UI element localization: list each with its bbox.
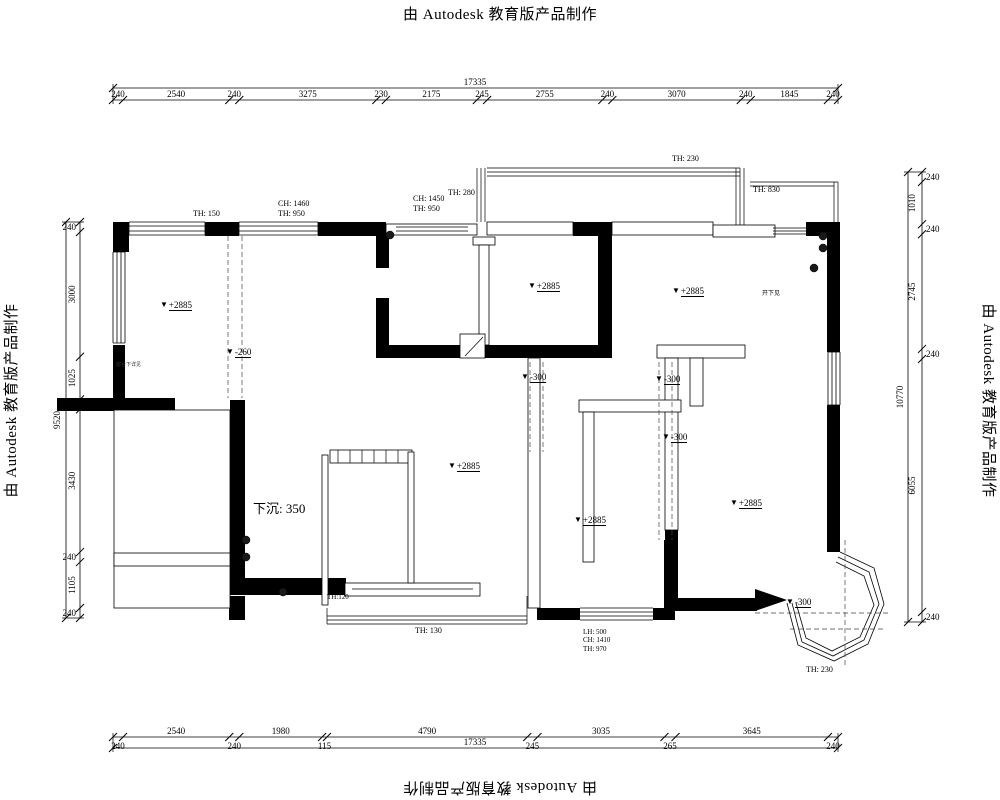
svg-text:2540: 2540 xyxy=(167,726,186,736)
svg-text:10770: 10770 xyxy=(895,385,905,408)
svg-text:240: 240 xyxy=(63,608,77,618)
svg-text:240: 240 xyxy=(111,89,125,99)
svg-text:245: 245 xyxy=(475,89,489,99)
svg-text:2540: 2540 xyxy=(167,89,186,99)
svg-text:17335: 17335 xyxy=(464,737,487,747)
svg-text:3430: 3430 xyxy=(67,471,77,490)
svg-text:17335: 17335 xyxy=(464,77,487,87)
dim-chain-right: 240101024027452406055240 xyxy=(907,168,940,626)
dim-total-right: 10770 xyxy=(895,168,912,626)
svg-text:240: 240 xyxy=(111,741,125,751)
svg-text:240: 240 xyxy=(63,399,77,409)
svg-text:3035: 3035 xyxy=(592,726,611,736)
floorplan-sheet: 由 Autodesk 教育版产品制作 由 Autodesk 教育版产品制作 由 … xyxy=(0,0,1000,800)
svg-text:1980: 1980 xyxy=(272,726,291,736)
svg-text:1105: 1105 xyxy=(67,576,77,594)
svg-text:2175: 2175 xyxy=(422,89,441,99)
bay-window xyxy=(787,552,884,661)
floor-plan-canvas: 2402540240327523021752452755240307024018… xyxy=(0,0,1000,800)
svg-text:240: 240 xyxy=(739,89,753,99)
svg-text:240: 240 xyxy=(926,349,940,359)
svg-text:1010: 1010 xyxy=(907,194,917,213)
svg-text:2745: 2745 xyxy=(907,282,917,301)
svg-text:3275: 3275 xyxy=(299,89,318,99)
svg-text:240: 240 xyxy=(926,224,940,234)
svg-text:115: 115 xyxy=(318,741,332,751)
svg-text:265: 265 xyxy=(663,741,677,751)
svg-text:240: 240 xyxy=(63,552,77,562)
svg-text:3645: 3645 xyxy=(743,726,762,736)
svg-text:1025: 1025 xyxy=(67,369,77,388)
svg-text:9520: 9520 xyxy=(52,411,62,430)
svg-text:3070: 3070 xyxy=(668,89,687,99)
svg-text:230: 230 xyxy=(374,89,388,99)
svg-text:245: 245 xyxy=(526,741,540,751)
svg-text:240: 240 xyxy=(228,741,242,751)
svg-text:6055: 6055 xyxy=(907,476,917,495)
svg-text:240: 240 xyxy=(826,741,840,751)
svg-text:2755: 2755 xyxy=(536,89,555,99)
svg-text:3000: 3000 xyxy=(67,285,77,304)
svg-text:240: 240 xyxy=(926,612,940,622)
svg-text:240: 240 xyxy=(826,89,840,99)
svg-text:240: 240 xyxy=(601,89,615,99)
svg-text:240: 240 xyxy=(926,172,940,182)
dim-total-bottom: 17335 xyxy=(109,737,842,752)
svg-text:1845: 1845 xyxy=(780,89,799,99)
dim-chain-top: 2402540240327523021752452755240307024018… xyxy=(109,89,842,104)
svg-text:4790: 4790 xyxy=(418,726,437,736)
svg-text:240: 240 xyxy=(228,89,242,99)
